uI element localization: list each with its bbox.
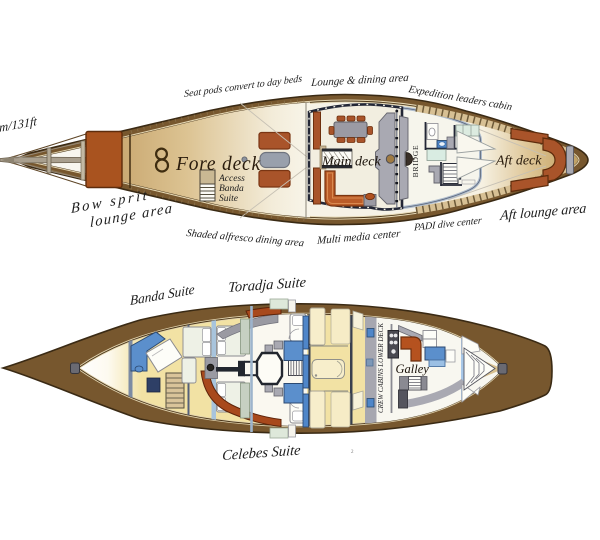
svg-text:Galley: Galley [396,362,430,376]
svg-text:Access: Access [218,174,245,184]
svg-text:Banda: Banda [219,184,244,194]
svg-text:Main deck: Main deck [321,155,381,170]
svg-text:Aft deck: Aft deck [495,154,542,169]
svg-text:Suite: Suite [219,194,238,204]
svg-text:Fore deck: Fore deck [175,154,261,175]
svg-text:BRIDGE: BRIDGE [411,145,420,178]
svg-text:CREW CABINS LOWER DECK: CREW CABINS LOWER DECK [377,323,385,413]
